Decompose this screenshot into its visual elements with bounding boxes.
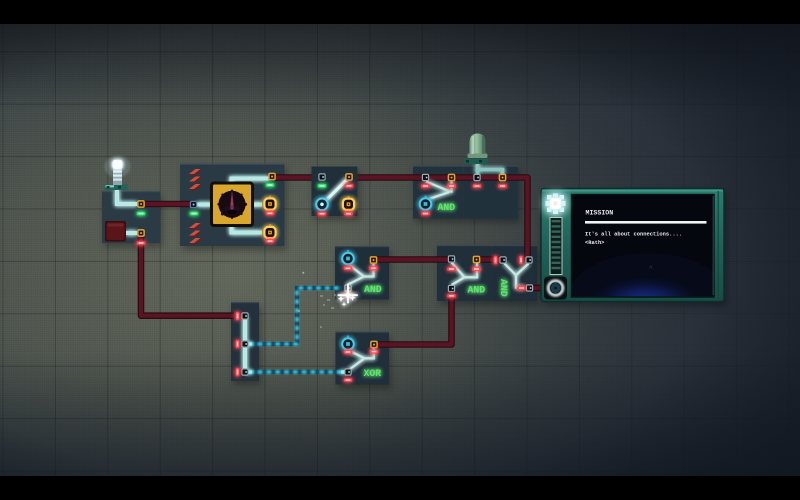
svg-text:AND: AND [468,285,486,296]
svg-text:AND: AND [498,279,509,297]
svg-text:^: ^ [649,265,653,272]
svg-text:<Rath>: <Rath> [585,240,604,246]
svg-text:It's all about connections....: It's all about connections.... [585,232,682,238]
svg-text:MISSION: MISSION [586,210,614,217]
svg-text:AND: AND [364,284,382,295]
svg-text:AND: AND [438,202,456,213]
svg-text:XOR: XOR [364,368,382,379]
